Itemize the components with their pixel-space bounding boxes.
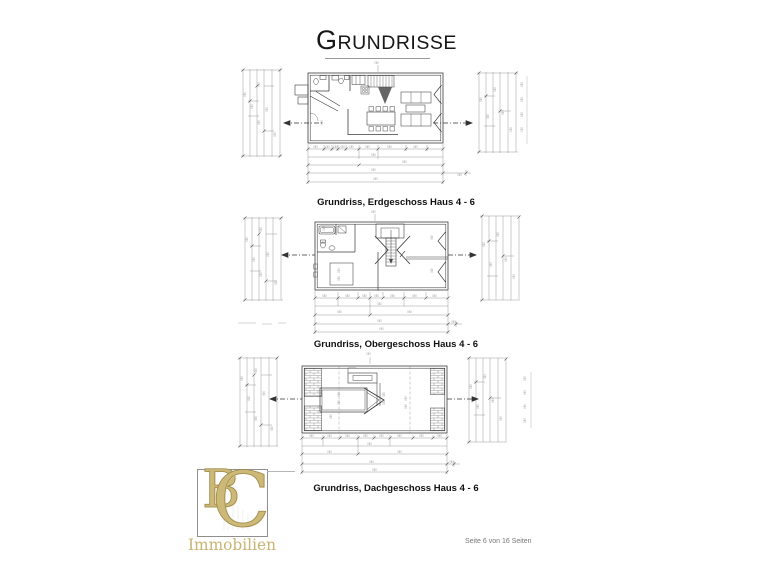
walls-and-furniture [314,222,448,291]
page-title: GRUNDRISSE [316,20,457,57]
dimension-lines [238,357,507,474]
caption-obergeschoss: Grundriss, Obergeschoss Haus 4 - 6 [246,339,546,350]
dimension-numbers [243,61,512,180]
floorplan-dachgeschoss [228,350,548,485]
dimension-ticks [239,357,508,474]
section-arrows [282,253,476,258]
dimension-ticks [244,215,521,334]
section-arrows [284,121,472,126]
logo-tail-line [267,471,295,472]
page-number: Seite 6 von 16 Seiten [465,538,532,545]
dimension-numbers [245,210,515,330]
caption-dachgeschoss: Grundriss, Dachgeschoss Haus 4 - 6 [246,483,546,494]
dimension-lines [241,65,518,184]
logo-letter-c: C [212,462,270,538]
walls-and-furniture [295,73,443,143]
dimension-numbers [240,352,502,471]
dimension-lines [243,214,520,334]
side-annotation-vertical [520,76,527,144]
floorplan-erdgeschoss [228,56,548,196]
page-title-initial: G [316,25,338,55]
floorplan-dachgeschoss-drawing [228,350,548,485]
floorplan-obergeschoss [228,206,548,338]
page-title-rest: RUNDRISSE [338,32,457,54]
logo-subtitle: Immobilien [188,535,276,554]
dimension-ticks [242,69,518,184]
document-page: GRUNDRISSE [0,0,768,567]
walls-and-rooms [302,366,447,433]
handwriting-smudge [238,323,286,324]
side-annotation-vertical [523,372,531,428]
floorplan-obergeschoss-drawing [228,206,548,338]
floorplan-erdgeschoss-drawing [228,56,548,196]
